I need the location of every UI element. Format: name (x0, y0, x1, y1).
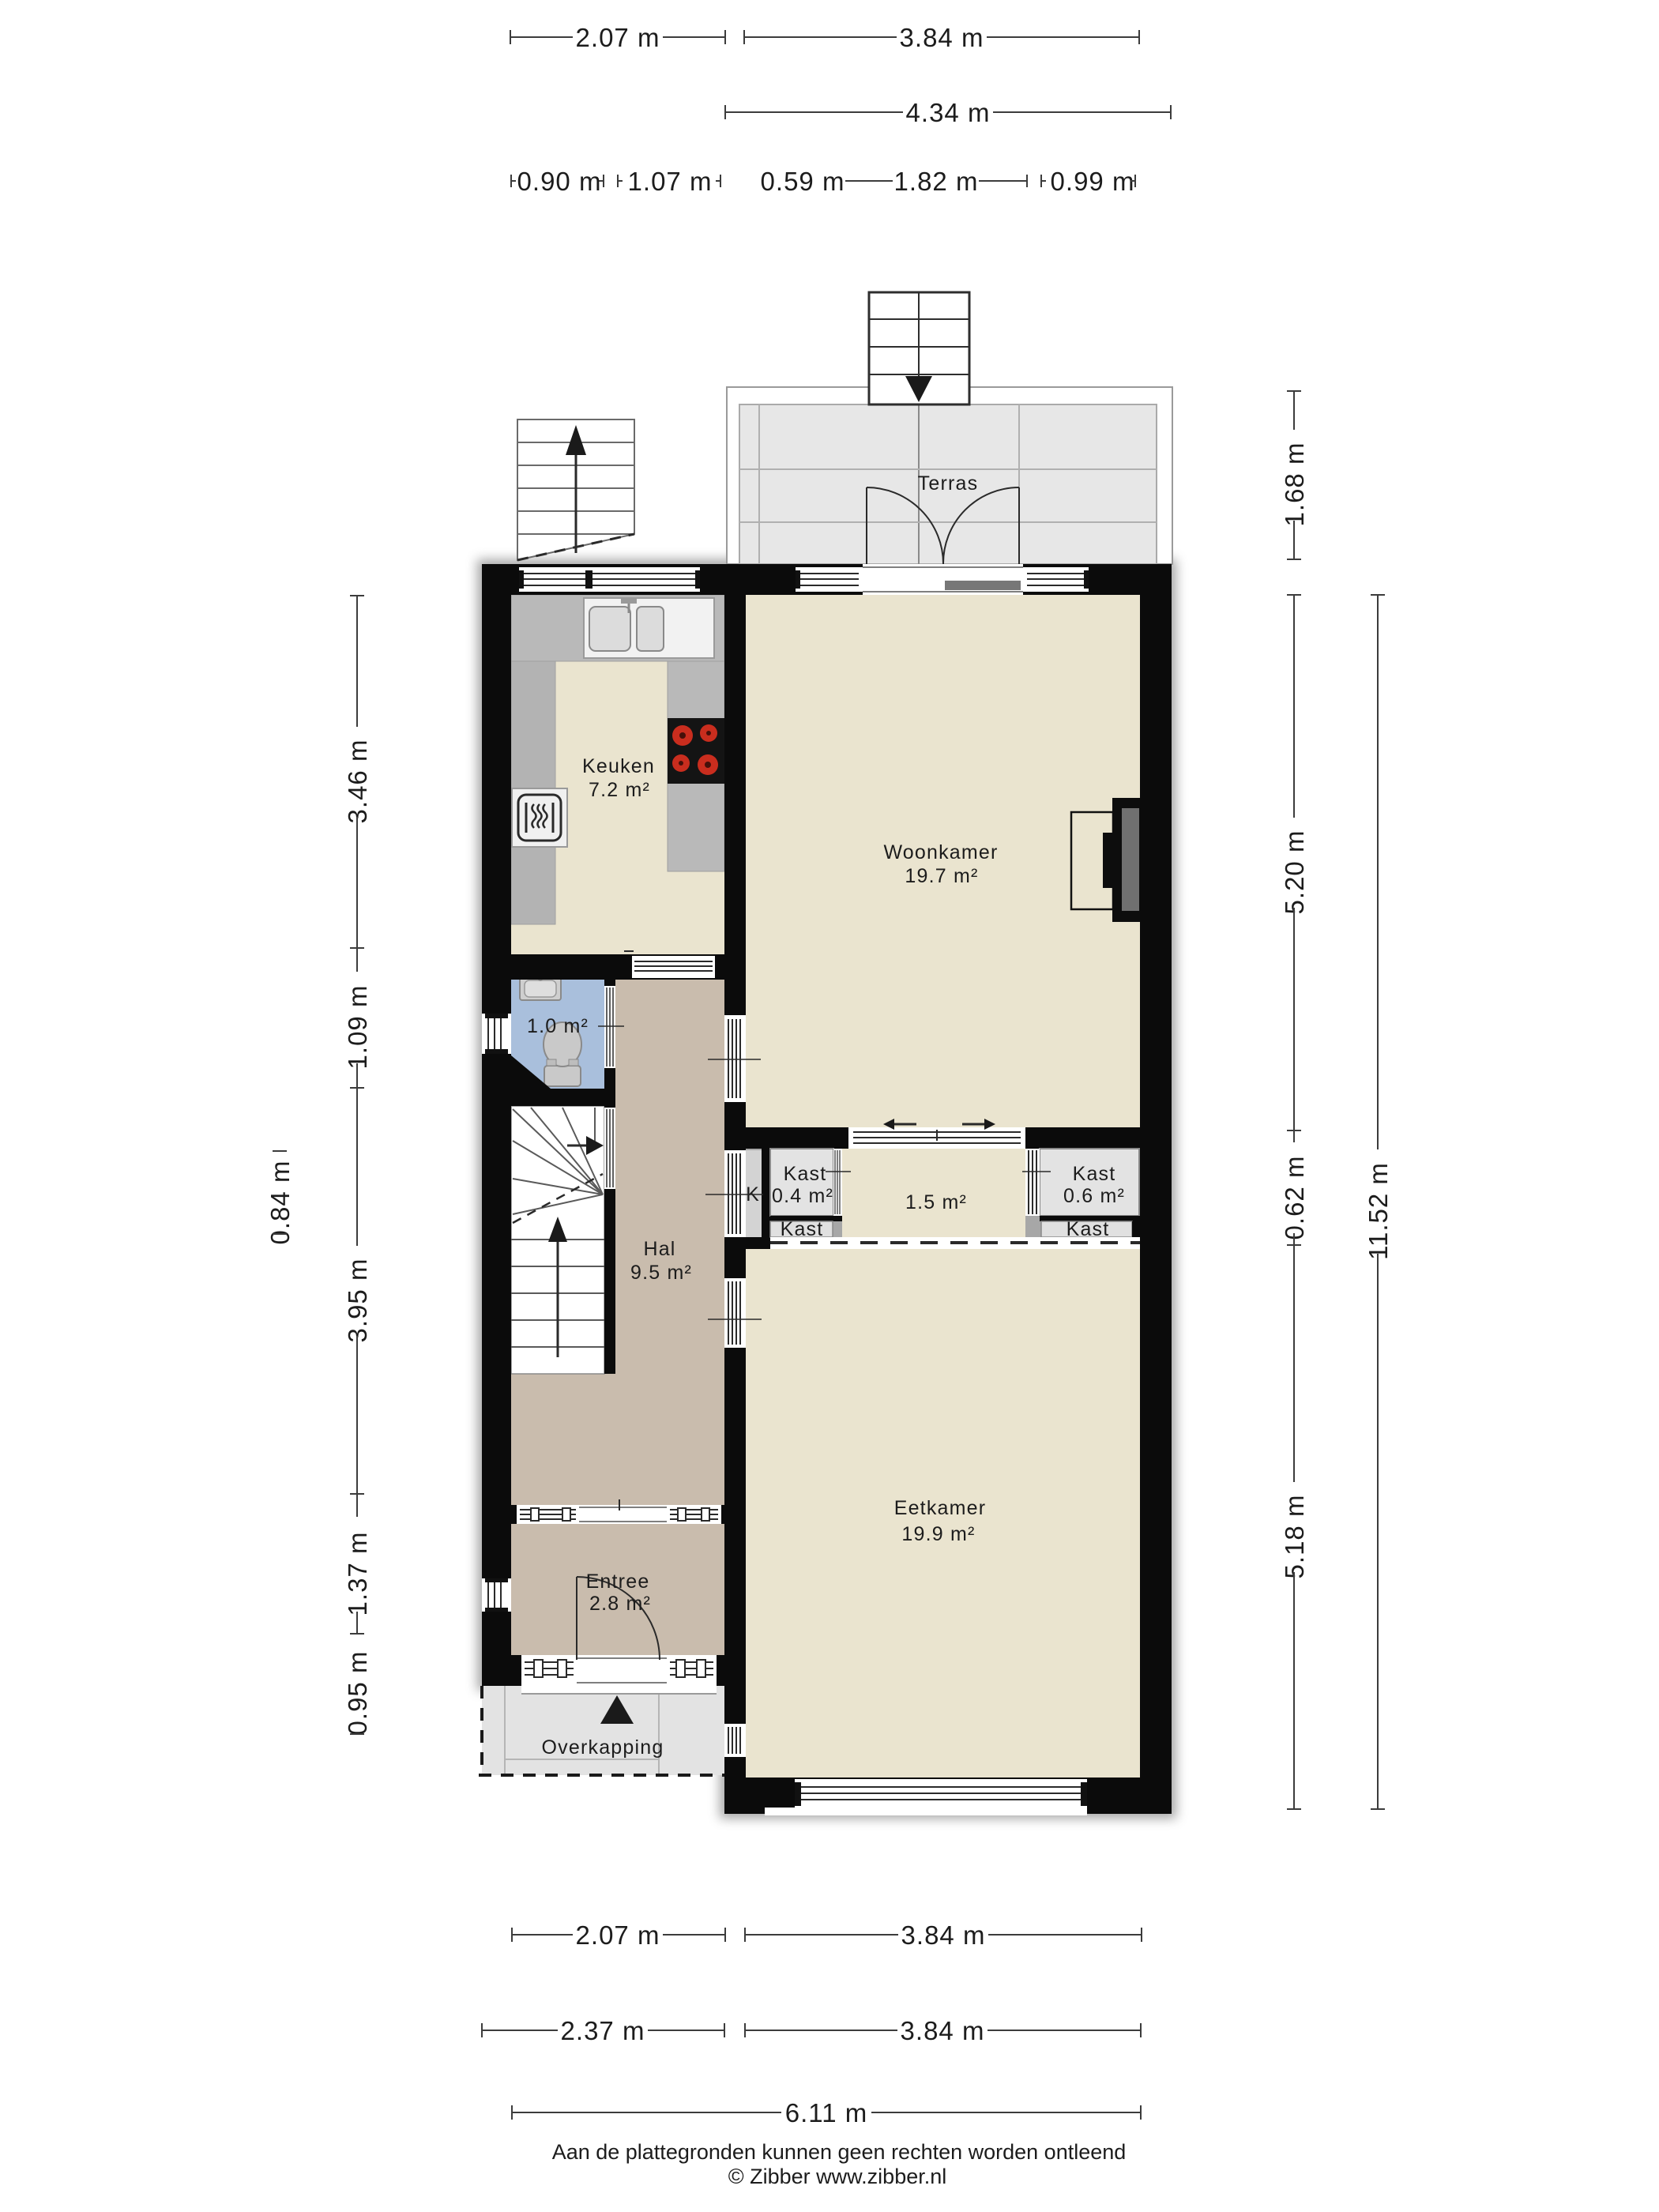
svg-text:1.82 m: 1.82 m (894, 167, 979, 196)
svg-text:1.68 m: 1.68 m (1280, 442, 1309, 527)
svg-text:Kast: Kast (1066, 1218, 1110, 1240)
svg-text:Eetkamer: Eetkamer (894, 1497, 987, 1519)
svg-text:0.59 m: 0.59 m (761, 167, 845, 196)
svg-text:19.9 m²: 19.9 m² (901, 1523, 975, 1545)
svg-text:Keuken: Keuken (582, 755, 655, 777)
svg-text:Entree: Entree (586, 1571, 650, 1593)
svg-text:Woonkamer: Woonkamer (883, 841, 998, 863)
svg-text:3.84 m: 3.84 m (900, 23, 984, 52)
svg-text:Kast: Kast (1073, 1163, 1116, 1185)
svg-text:9.5 m²: 9.5 m² (630, 1262, 692, 1284)
svg-text:11.52 m: 11.52 m (1364, 1162, 1393, 1260)
svg-text:Terras: Terras (918, 472, 979, 495)
svg-text:Kast: Kast (781, 1218, 824, 1240)
svg-text:0.6 m²: 0.6 m² (1063, 1185, 1125, 1207)
svg-text:0.90 m: 0.90 m (517, 167, 602, 196)
svg-text:Kast: Kast (784, 1163, 827, 1185)
svg-text:2.37 m: 2.37 m (561, 2016, 645, 2045)
svg-text:© Zibber www.zibber.nl: © Zibber www.zibber.nl (728, 2165, 947, 2188)
svg-text:7.2 m²: 7.2 m² (589, 779, 650, 801)
svg-text:0.4 m²: 0.4 m² (772, 1185, 833, 1207)
svg-text:3.46 m: 3.46 m (343, 739, 372, 824)
svg-text:2.07 m: 2.07 m (576, 1920, 660, 1950)
svg-text:3.95 m: 3.95 m (343, 1258, 372, 1343)
svg-text:0.62 m: 0.62 m (1280, 1156, 1309, 1240)
svg-text:1.5 m²: 1.5 m² (905, 1191, 967, 1213)
svg-text:4.34 m: 4.34 m (906, 98, 991, 127)
svg-text:5.18 m: 5.18 m (1280, 1495, 1309, 1579)
svg-text:1.09 m: 1.09 m (343, 985, 372, 1070)
svg-text:2.07 m: 2.07 m (576, 23, 660, 52)
svg-text:Hal: Hal (643, 1238, 675, 1260)
svg-text:3.84 m: 3.84 m (901, 2016, 985, 2045)
svg-text:0.99 m: 0.99 m (1051, 167, 1135, 196)
svg-text:1.0 m²: 1.0 m² (527, 1015, 589, 1037)
svg-text:1.37 m: 1.37 m (343, 1532, 372, 1616)
svg-text:5.20 m: 5.20 m (1280, 830, 1309, 915)
svg-text:0.84 m: 0.84 m (265, 1161, 295, 1245)
svg-text:19.7 m²: 19.7 m² (905, 865, 978, 887)
svg-text:3.84 m: 3.84 m (901, 1920, 986, 1950)
svg-text:2.8 m²: 2.8 m² (589, 1593, 651, 1615)
svg-text:Overkapping: Overkapping (542, 1736, 664, 1759)
svg-text:0.95 m: 0.95 m (343, 1651, 372, 1736)
svg-text:Aan de plattegronden kunnen ge: Aan de plattegronden kunnen geen rechten… (552, 2140, 1127, 2164)
svg-text:6.11 m: 6.11 m (785, 2098, 867, 2127)
svg-text:1.07 m: 1.07 m (628, 167, 713, 196)
